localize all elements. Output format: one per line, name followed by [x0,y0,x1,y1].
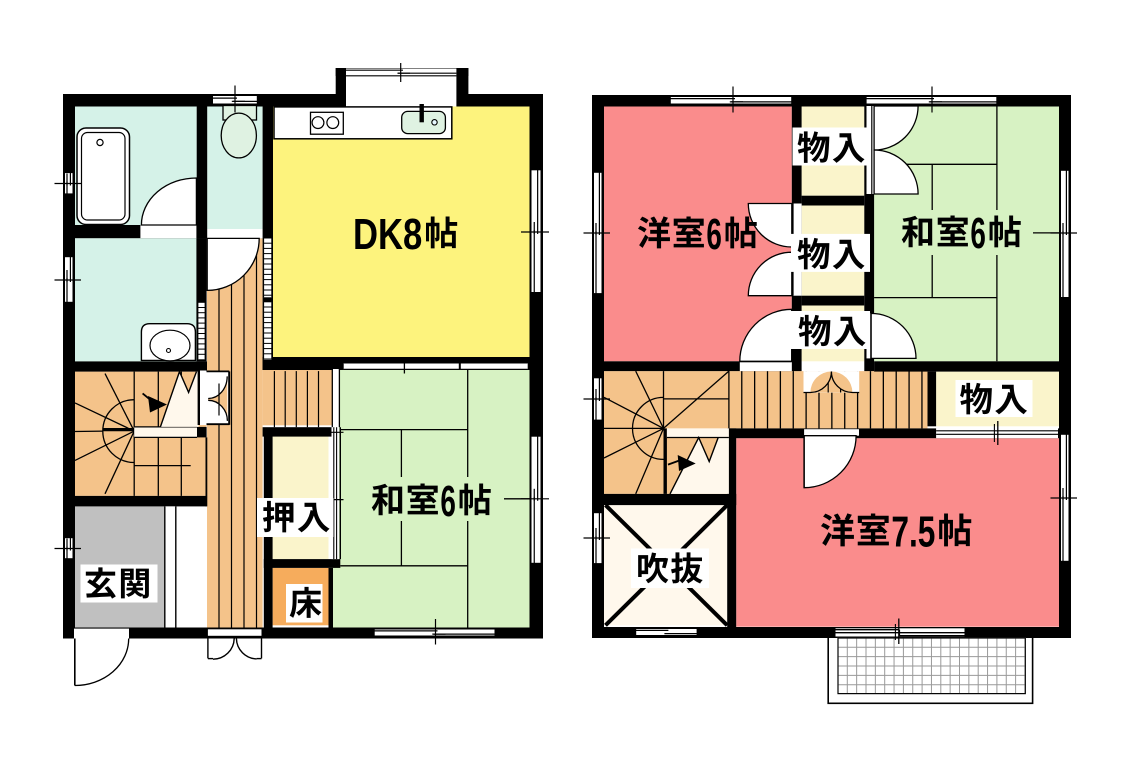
svg-text:6: 6 [970,210,986,258]
svg-text:6: 6 [440,478,456,526]
svg-text:6: 6 [706,211,722,259]
svg-text:7.5: 7.5 [891,508,935,556]
svg-text:DK8: DK8 [353,211,422,259]
